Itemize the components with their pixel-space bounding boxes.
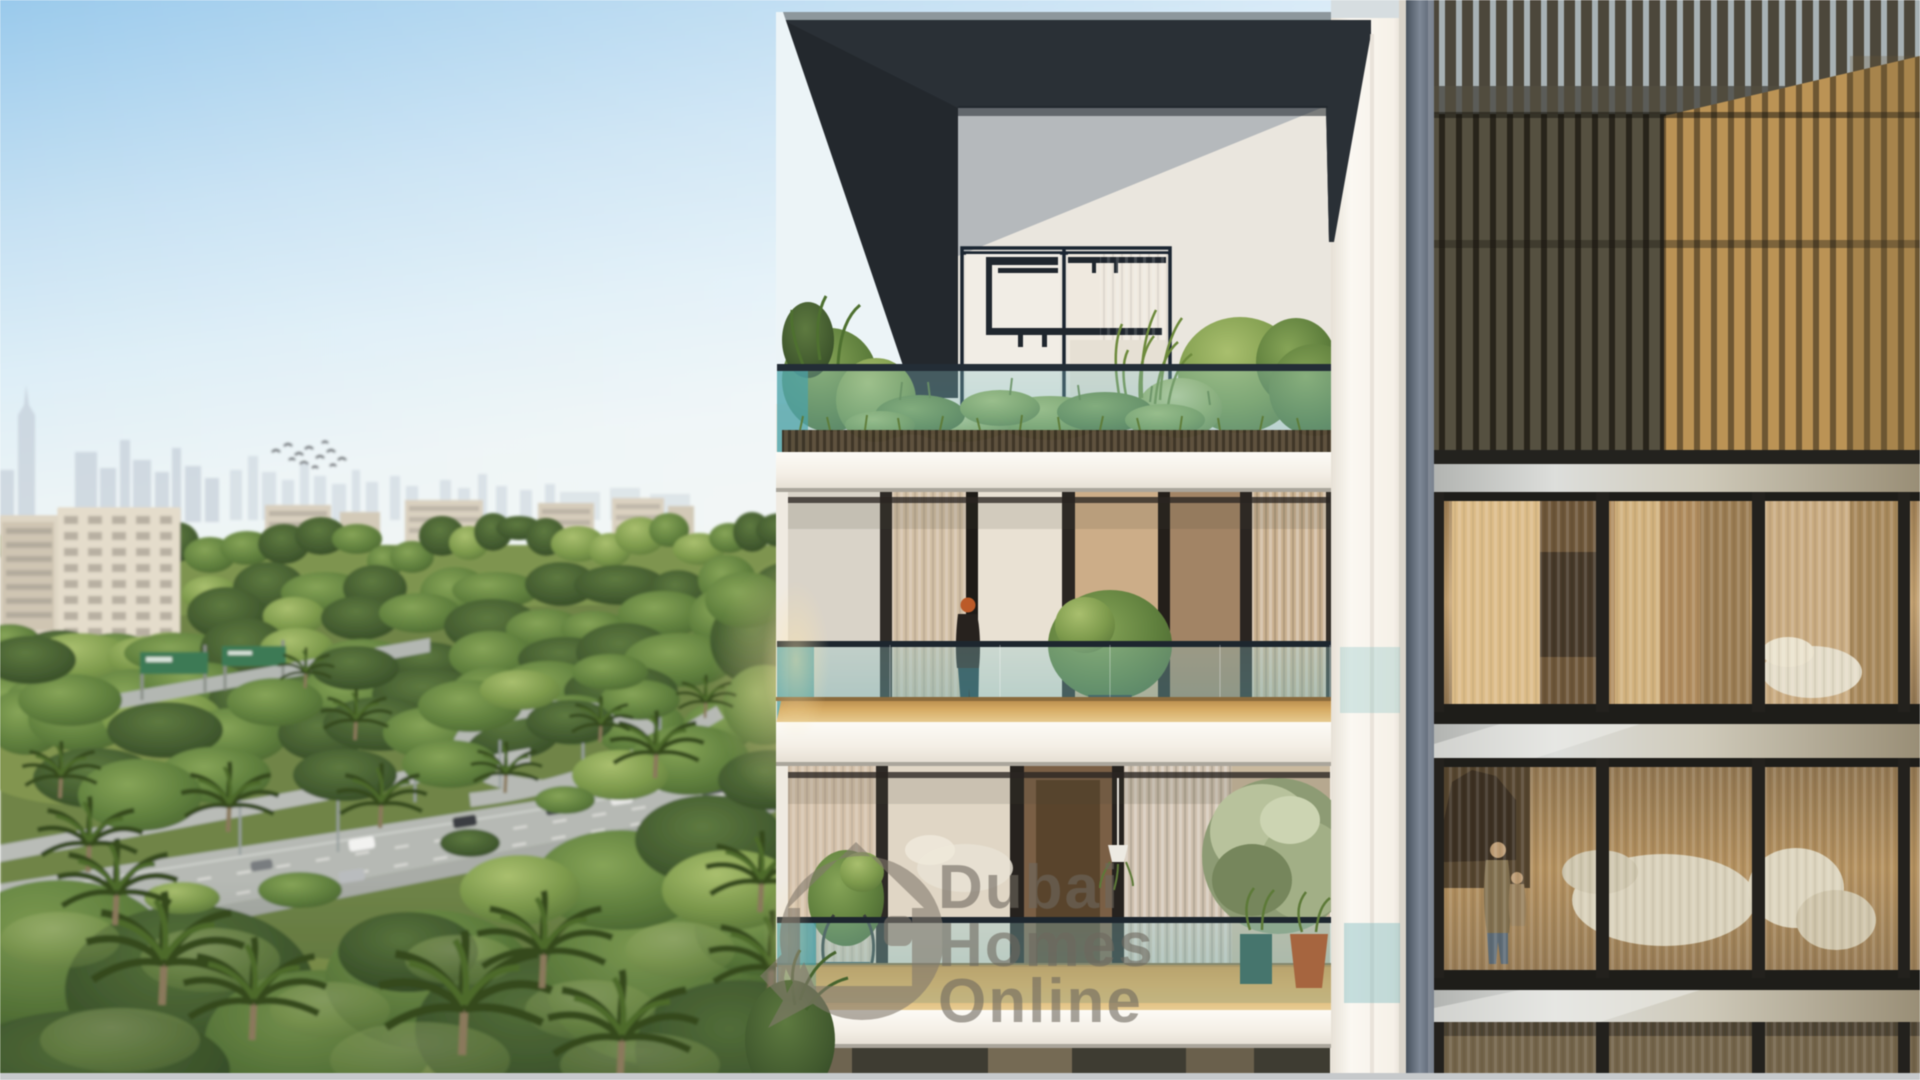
- svg-text:Online: Online: [938, 967, 1143, 1036]
